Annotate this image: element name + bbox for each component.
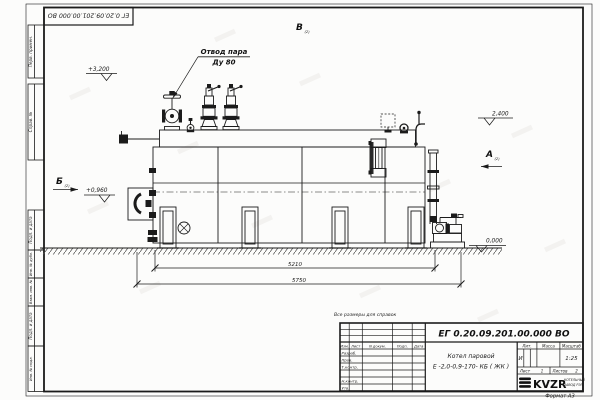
format-label: Формат А3	[545, 394, 575, 400]
row-razrab: Разраб.	[342, 351, 357, 356]
margin-label: Подп. и дата	[28, 216, 33, 244]
sheets-value: 2	[575, 369, 578, 374]
col-list: Лист	[350, 345, 361, 349]
row-nkontr: Н.контр.	[342, 379, 359, 384]
reference-note: Все размеры для справок	[334, 312, 397, 318]
view-index: (2)	[495, 157, 501, 161]
margin-label: Справ. №	[28, 111, 33, 132]
col-izm: Изм.	[340, 345, 348, 349]
product-name-line2: Е -2,0-0,9-170- КБ ( ЖК )	[433, 364, 509, 371]
title-doc-number: ЕГ 0.20.09.201.00.000 ВО	[438, 330, 570, 340]
scale-value: 1:25	[565, 356, 578, 362]
dimension-text-overall: 5750	[292, 278, 306, 284]
lit-label: Лит.	[521, 344, 531, 349]
steam-outlet-label-line1: Отвод пара	[201, 48, 248, 56]
sheet-label: Лист	[519, 369, 531, 374]
elevation-value: +3,200	[88, 67, 110, 73]
col-podp: Подп.	[397, 345, 408, 349]
row-utv: Утв.	[342, 386, 350, 391]
view-letter: В	[296, 23, 303, 33]
view-index: (2)	[305, 30, 311, 34]
scale-label: Масштаб	[562, 344, 582, 349]
row-tkontr: Т.контр.	[342, 365, 358, 370]
elevation-value: 2,400	[492, 112, 509, 118]
elevation-value: 0,000	[486, 239, 503, 245]
logo-subtext-2: ЗАВОД РЭП	[564, 383, 584, 387]
view-letter: А	[485, 150, 493, 160]
margin-label: Взам. инв. №	[29, 280, 33, 305]
product-name-line1: Котел паровой	[447, 353, 494, 360]
boiler-general-view-drawing: ЕГ 0.20.09.201.00.000 ВО Перв. примен. С…	[0, 0, 600, 400]
lit-value: И	[518, 356, 522, 362]
kvzr-logo-icon	[519, 378, 531, 388]
view-letter: Б	[56, 177, 63, 187]
col-doc: N докум.	[369, 345, 386, 349]
logo-subtext-1: КОТЕЛЬНЫЙ	[564, 377, 585, 382]
stamp-doc-number: ЕГ 0.20.09.201.00.000 ВО	[48, 11, 130, 18]
sheet-value: 1	[541, 369, 544, 374]
margin-label: Инв. № дубл.	[29, 252, 33, 277]
row-prov: Пров.	[342, 358, 353, 363]
drawing-sheet: ЕГ 0.20.09.201.00.000 ВО Перв. примен. С…	[0, 0, 600, 400]
mass-label: Масса	[542, 344, 555, 349]
margin-label: Инв. № подл.	[29, 356, 33, 381]
margin-label: Перв. примен.	[28, 36, 33, 67]
margin-label: Подп. и дата	[28, 312, 33, 340]
view-index: (2)	[65, 184, 71, 188]
ground-hatch	[40, 248, 502, 255]
steam-outlet-label-line2: Ду 80	[212, 59, 236, 67]
sheets-label: Листов	[552, 369, 569, 374]
elevation-value: +0,960	[86, 188, 108, 194]
logo-text: KVZR	[533, 378, 567, 391]
col-data: Дата	[413, 345, 423, 349]
dimension-text-inner: 5210	[288, 262, 302, 268]
paper-background	[0, 0, 600, 400]
